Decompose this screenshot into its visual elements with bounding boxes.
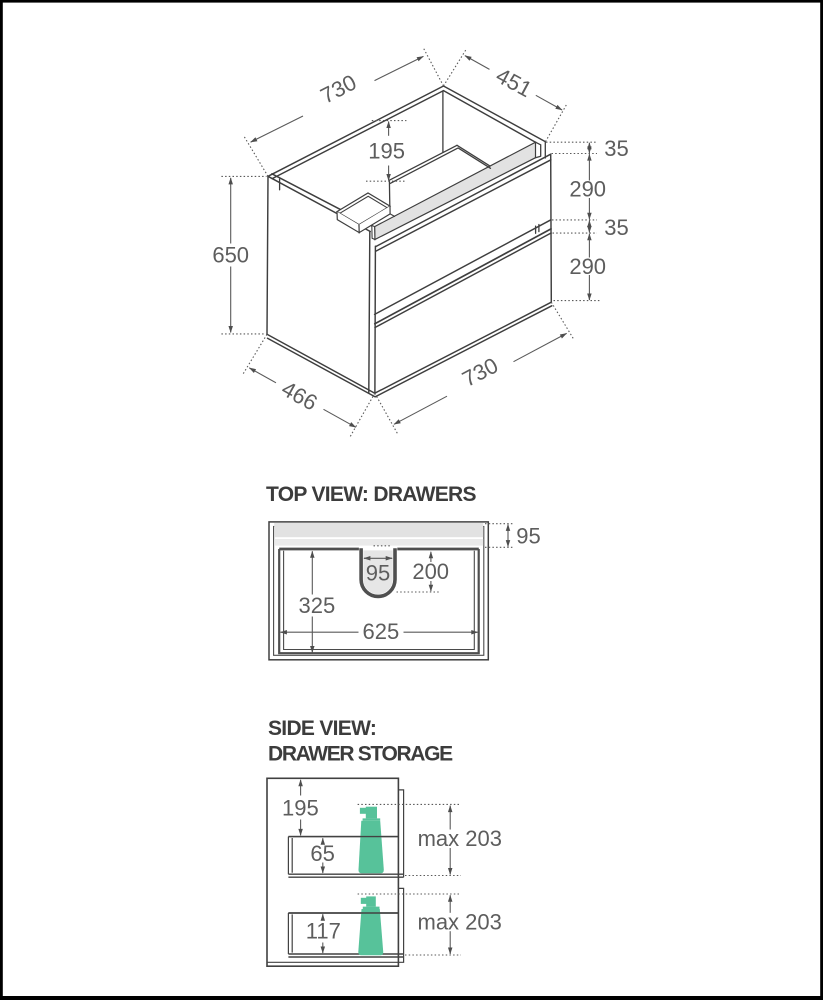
svg-text:650: 650 [212,243,249,268]
svg-text:325: 325 [299,593,336,618]
svg-text:95: 95 [366,560,390,585]
svg-text:35: 35 [604,136,628,161]
svg-text:195: 195 [282,796,319,821]
svg-text:DRAWER STORAGE: DRAWER STORAGE [268,742,453,765]
svg-text:290: 290 [569,254,606,279]
svg-text:max 203: max 203 [418,826,502,851]
svg-text:117: 117 [306,919,341,944]
svg-text:65: 65 [310,841,334,866]
svg-text:200: 200 [412,559,449,584]
svg-text:SIDE VIEW:: SIDE VIEW: [268,717,376,740]
svg-text:290: 290 [569,177,606,202]
svg-text:625: 625 [363,619,400,644]
svg-text:35: 35 [604,215,628,240]
svg-text:195: 195 [368,139,405,164]
svg-text:max 203: max 203 [418,909,502,934]
svg-text:95: 95 [516,523,540,548]
svg-text:TOP VIEW: DRAWERS: TOP VIEW: DRAWERS [266,483,476,506]
